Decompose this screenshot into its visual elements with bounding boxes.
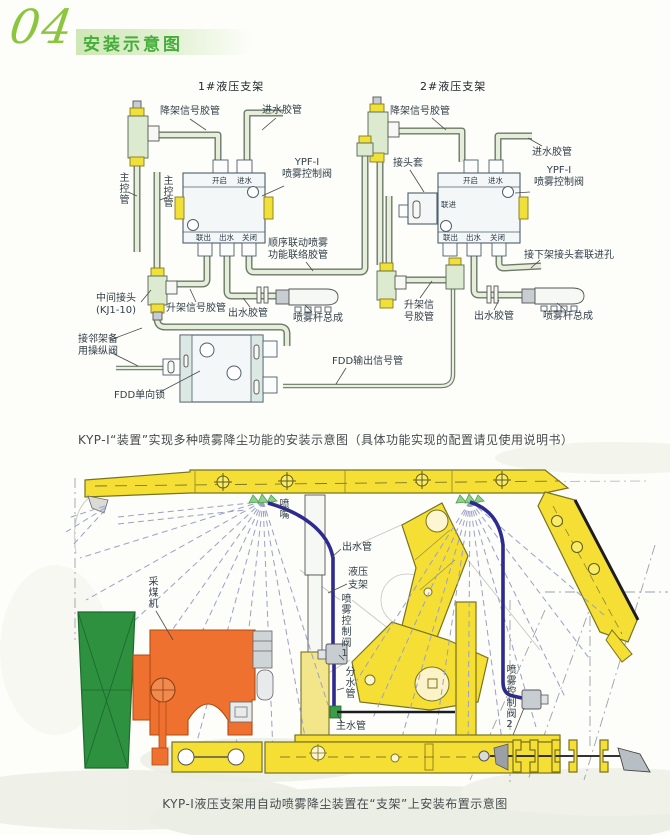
section-number: 04 [6,0,78,55]
tee-fitting-2-mid [446,258,464,289]
label-lower-signal-hose-1: 降架信号胶管 [160,106,220,118]
shield-beam [538,492,638,662]
label-spray-bar-1: 喷雾杆总成 [293,313,343,325]
raise-signal-2-line1: 升架信 [404,300,434,312]
label-outlet-hose-2: 出水胶管 [474,311,514,323]
support-line2: 支架 [348,579,368,592]
bottom-illustration [66,470,668,782]
port-water-in-1: 进水 [237,177,252,185]
middle-joint-line2: (KJ1-10) [96,305,136,317]
port-water-out-2: 出水 [466,234,481,242]
label-middle-joint: 中间接头 (KJ1-10) [96,293,136,317]
label-fdd-lock: FDD单向锁 [114,390,165,402]
adjacent-valve-line2: 用操纵阀 [78,346,118,358]
nozzle-cluster-right [456,494,484,503]
label-shearer: 采煤机 [146,576,157,609]
port-water-out-1: 出水 [219,234,234,242]
label-joint-sleeve: 接头套 [393,158,423,170]
label-distribution-pipe: 分水管 [343,666,354,699]
manual-page: 04 安装示意图 1#液压支架 2#液压支架 降架信号胶管 进水胶管 YPF-Ⅰ… [0,0,670,835]
label-hydraulic-support: 液压 支架 [348,566,368,592]
label-fdd-output-pipe: FDD输出信号管 [332,356,403,368]
label-raise-signal-hose-2: 升架信 号胶管 [404,300,434,324]
diagram-artwork [0,0,670,835]
conveyor-trough [172,742,262,772]
port-close-1: 关闭 [242,234,257,242]
port-link-out-2: 联出 [443,234,458,242]
label-ypf-valve-1: YPF-Ⅰ 喷雾控制阀 [272,157,342,181]
adjacent-valve-line1: 接邻架备 [78,334,118,346]
label-spray-bar-2: 喷雾杆总成 [543,311,593,323]
port-open-2: 开启 [463,177,478,185]
label-nozzle: 喷嘴 [277,498,288,520]
bottom-diagram-caption: KYP-I液压支架用自动喷雾降尘装置在“支架”上安装布置示意图 [0,795,670,812]
fdd-one-way-lock [163,335,277,402]
label-spray-valve-2: 喷雾控制阀2 [504,664,515,731]
port-close-2: 关闭 [490,234,505,242]
ypf-name-2: 喷雾控制阀 [524,177,594,189]
label-adjacent-valve: 接邻架备 用操纵阀 [78,334,118,358]
spray-valve-2-body [522,690,548,709]
coal-shearer [78,612,273,772]
sequence-pipe-coupling [357,136,373,156]
nozzle-cluster-left [249,494,277,503]
label-lower-signal-hose-2: 降架信号胶管 [390,106,450,118]
label-inlet-hose-2: 进水胶管 [532,147,572,159]
ypf-name-1: 喷雾控制阀 [272,169,342,181]
ypf-model-2: YPF-Ⅰ [524,165,594,177]
section-title-bar: 安装示意图 [76,29,251,55]
support2-title: 2#液压支架 [420,78,486,94]
hydraulic-prop [301,495,329,738]
ypf-model-1: YPF-Ⅰ [272,157,342,169]
label-raise-signal-hose-1: 升架信号胶管 [166,303,226,315]
canopy-beam [85,470,568,513]
joint-sleeve-box [399,193,437,224]
support1-title: 1#液压支架 [198,78,264,94]
label-ypf-valve-2: YPF-Ⅰ 喷雾控制阀 [524,165,594,189]
label-main-control-pipe-a: 主控管 [117,172,128,205]
tail-rollers [490,740,650,772]
port-link-in-2: 联进 [441,201,456,209]
signal-valve-1 [128,101,159,166]
label-inlet-hose-1: 进水胶管 [262,105,302,117]
sequence-hose-line2: 功能联络胶管 [268,250,328,262]
label-next-frame-hole: 接下架接头套联进孔 [524,250,614,262]
label-spray-valve-1: 喷雾控制阀1 [339,593,350,660]
raise-signal-2-line2: 号胶管 [404,312,434,324]
label-outlet-hose-1: 出水胶管 [228,308,268,320]
port-water-in-2: 进水 [488,177,503,185]
support-line1: 液压 [348,566,368,579]
label-main-control-pipe-b: 主控管 [161,175,172,208]
label-outlet-pipe: 出水管 [342,542,372,554]
tee-fitting-2-left [377,263,406,308]
label-sequence-hose: 顺序联动喷雾 功能联络胶管 [268,238,328,262]
port-link-out-1: 联出 [196,234,211,242]
spray-control-valve-2 [399,160,528,256]
section-title: 安装示意图 [83,30,183,55]
port-open-1: 开启 [212,177,227,185]
label-main-water-pipe: 主水管 [336,721,366,733]
sequence-hose-line1: 顺序联动喷雾 [268,238,328,250]
top-diagram-caption: KYP-I“装置”实现多种喷雾降尘功能的安装示意图（具体功能实现的配置请见使用说… [78,431,574,448]
middle-joint-line1: 中间接头 [96,293,136,305]
